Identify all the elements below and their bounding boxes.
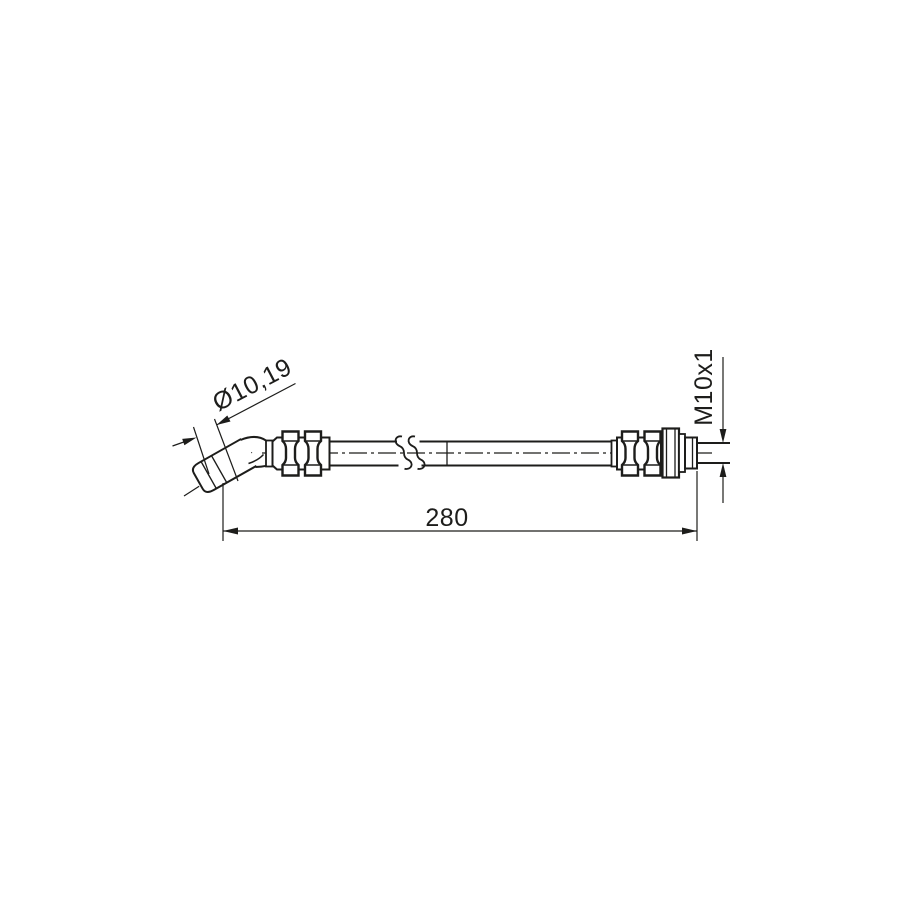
- right-threaded-fitting: [663, 429, 731, 478]
- thread-label: M10x1: [690, 348, 718, 426]
- crimp-band-outline: [645, 432, 661, 476]
- crimp-band-outline: [305, 432, 321, 476]
- end-collar: [685, 438, 697, 469]
- crimp-band-outline: [283, 432, 299, 476]
- crimp-band: [622, 432, 638, 476]
- length-label: 280: [425, 504, 468, 532]
- brake-hose-technical-drawing: Ø10,19 M10x1 280: [0, 0, 915, 915]
- elbow-inner-curve: [256, 466, 267, 467]
- drawing-canvas: Ø10,19 M10x1 280: [0, 0, 915, 915]
- hex-nut: [663, 429, 680, 478]
- diameter-arrowhead-right: [217, 416, 231, 426]
- left-crimp-ferrule: [266, 432, 330, 476]
- elbow-outer-curve: [241, 437, 267, 441]
- diameter-label: Ø10,19: [208, 353, 296, 417]
- thread-dimension: M10x1: [690, 348, 726, 503]
- length-arrowhead-right: [682, 528, 697, 535]
- diameter-arrowhead-left: [182, 438, 196, 446]
- crimp-band-outline: [622, 432, 638, 476]
- length-arrowhead-left: [223, 528, 238, 535]
- length-dimension: 280: [223, 471, 697, 541]
- left-angled-fitting: [191, 437, 267, 495]
- right-crimp-ferrule: [612, 432, 662, 476]
- crimp-band: [283, 432, 299, 476]
- crimp-band: [645, 432, 661, 476]
- crimp-band: [305, 432, 321, 476]
- thread-arrowhead-up: [720, 463, 727, 477]
- thread-arrowhead-down: [720, 429, 727, 443]
